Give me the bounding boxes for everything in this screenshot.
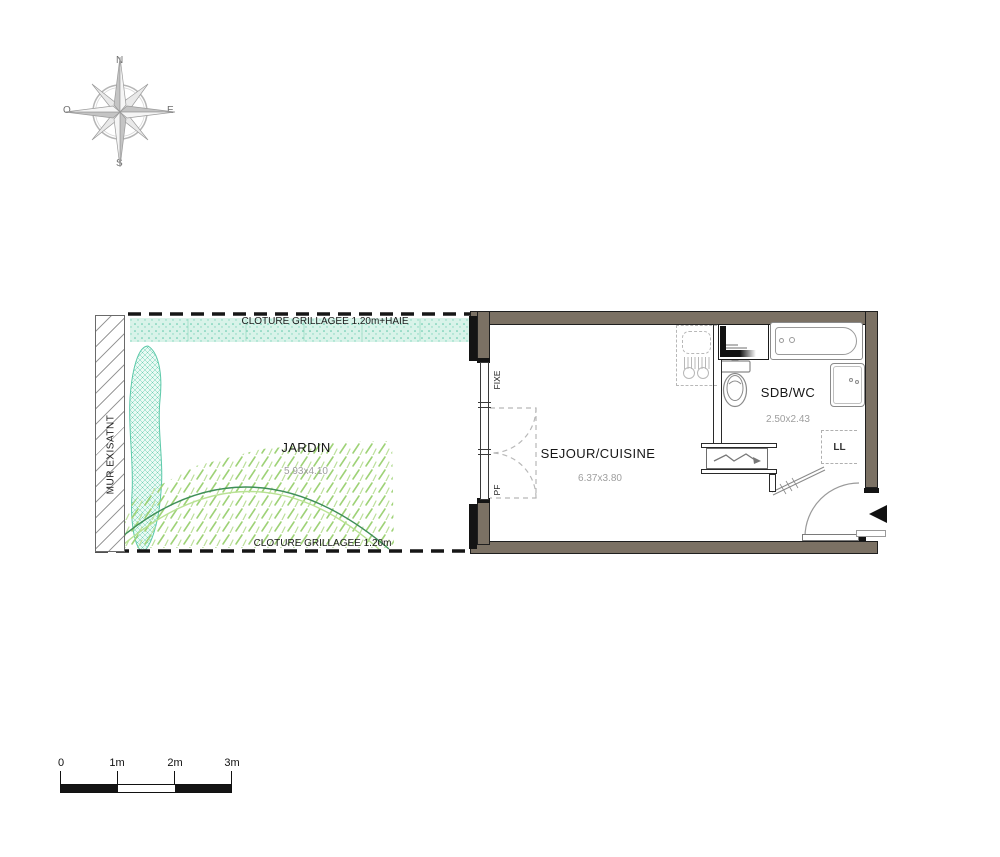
entry-door-arc — [805, 483, 859, 537]
window-frame — [480, 362, 489, 500]
wall-left-bottom-stub — [477, 498, 490, 545]
fence-bottom-label: CLOTURE GRILLAGEE 1.20m — [250, 538, 395, 549]
room-label-sejour: SEJOUR/CUISINE — [518, 446, 678, 461]
washbasin-faucet — [849, 378, 853, 382]
washbasin-faucet — [855, 380, 859, 384]
room-dim-jardin: 5.93x4.10 — [246, 466, 366, 477]
wall-bottom — [470, 541, 878, 554]
compass-rose — [58, 50, 183, 175]
bathroom-door-leaf — [772, 467, 825, 495]
radiator-zigzag-icon — [707, 449, 767, 468]
room-label-jardin: JARDIN — [246, 440, 366, 455]
floor-plan-page: N E S O MUR EXISATNT FIXE PF — [0, 0, 1000, 857]
kitchen-hob-burner — [683, 367, 695, 379]
washer-box: LL — [821, 430, 857, 464]
radiator — [706, 448, 768, 469]
window-mullion-tick — [478, 449, 491, 455]
wall-right-end-cap — [864, 488, 879, 493]
entry-threshold — [856, 530, 886, 537]
partition-door-return — [769, 474, 776, 492]
fence-top-label: CLOTURE GRILLAGEE 1.20m+HAIE — [240, 316, 410, 327]
bathtub-faucet — [789, 337, 795, 343]
partition-south-lower — [701, 469, 777, 474]
wall-left-top-stub — [477, 311, 490, 363]
window-door-label: PF — [492, 470, 502, 510]
bathtub-drain — [779, 338, 784, 343]
window-mullion-tick — [478, 402, 491, 408]
existing-wall-label: MUR EXISATNT — [106, 405, 117, 505]
technical-duct — [718, 324, 769, 360]
kitchen-hob-burner — [697, 367, 709, 379]
washer-label: LL — [833, 442, 845, 453]
room-dim-sdb: 2.50x2.43 — [728, 414, 848, 425]
bathtub-inner — [775, 327, 857, 355]
duct-fill-icon — [719, 325, 767, 358]
kitchen-sink — [682, 331, 711, 354]
window-fixed-label: FIXE — [492, 360, 502, 400]
garden-post-top — [469, 316, 477, 361]
room-dim-sejour: 6.37x3.80 — [540, 473, 660, 484]
room-label-sdb: SDB/WC — [728, 385, 848, 400]
garden-post-bottom — [469, 504, 477, 549]
wall-right — [865, 311, 878, 488]
entry-door-leaf — [802, 534, 859, 541]
